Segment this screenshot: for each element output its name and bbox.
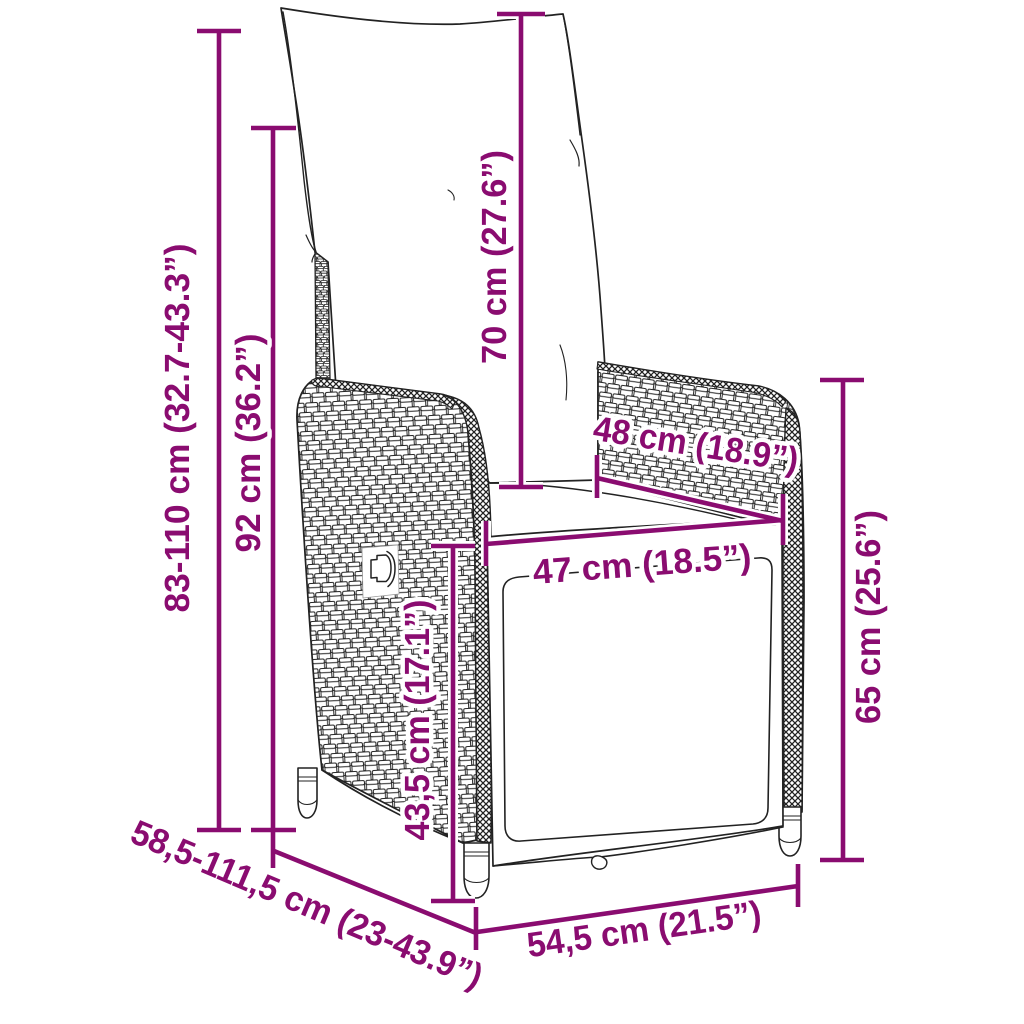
svg-text:83-110 cm (32.7-43.3”): 83-110 cm (32.7-43.3”) [158,244,197,613]
svg-text:65 cm (25.6”): 65 cm (25.6”) [849,510,888,724]
svg-text:70 cm (27.6”): 70 cm (27.6”) [475,150,514,364]
svg-text:92 cm (36.2”): 92 cm (36.2”) [229,334,268,553]
svg-text:43,5 cm (17.1”): 43,5 cm (17.1”) [398,600,437,841]
